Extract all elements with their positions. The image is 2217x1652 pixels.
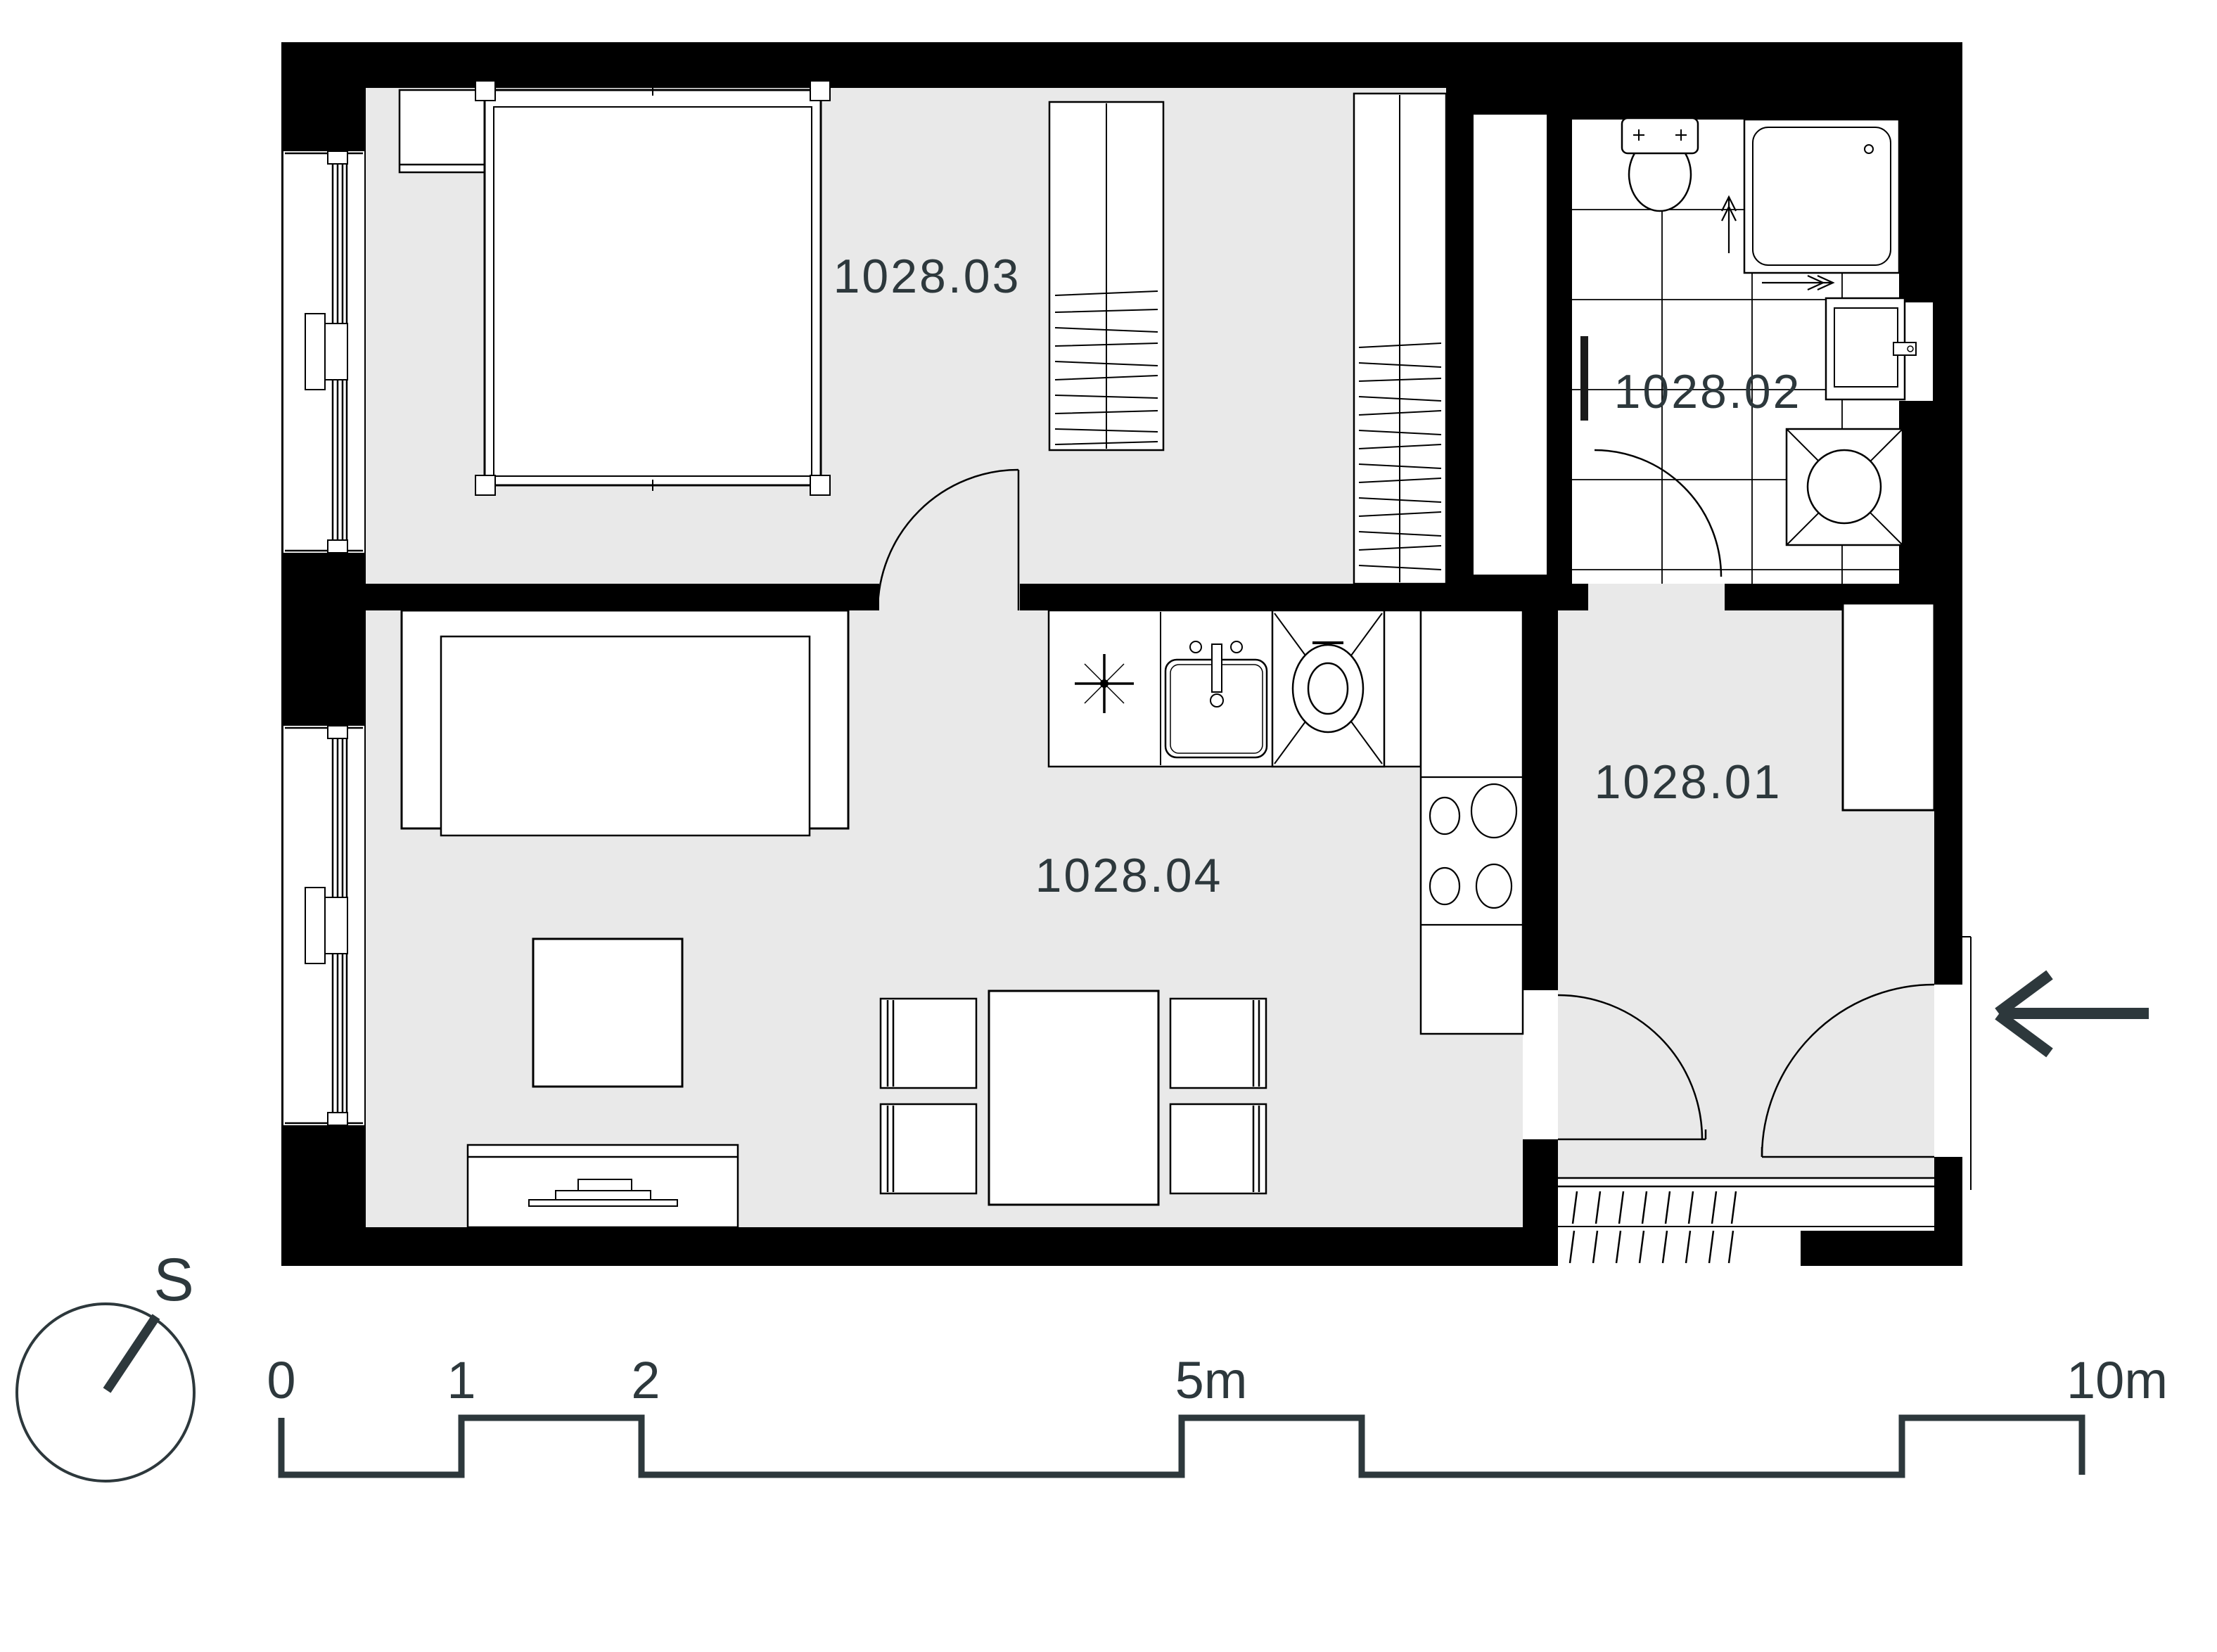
scale-tick-5m: 5m: [1175, 1355, 1248, 1407]
window-bedroom-glazing: [285, 151, 363, 553]
entrance-door: [1762, 985, 1934, 1157]
scale-tick-0: 0: [267, 1355, 295, 1407]
floor-plan-canvas: 1028.03 1028.02 1028.04 1028.01 S 0 1 2 …: [0, 0, 2217, 1652]
kitchen-sink: [1165, 641, 1267, 757]
coffee-table: [533, 939, 682, 1087]
scale-bar: [281, 1418, 2082, 1475]
entrance-arrow-icon: [1998, 975, 2149, 1053]
plan-linework: [0, 0, 2217, 1652]
tv-sideboard: [468, 1145, 738, 1227]
entry-closet: [1843, 603, 1934, 810]
toilet-icon: [1622, 118, 1698, 211]
bathroom-sink-icon: [1826, 298, 1916, 399]
compass-circle: [17, 1304, 194, 1481]
bedroom-door: [878, 470, 1018, 610]
sofa: [402, 610, 848, 835]
room-label-bedroom: 1028.03: [833, 252, 1021, 300]
window-living-glazing: [285, 726, 363, 1125]
shower-icon: [1744, 120, 1899, 273]
nightstand: [400, 90, 485, 172]
drain-arrow-right-icon: [1762, 276, 1833, 290]
room-label-entry: 1028.01: [1595, 758, 1782, 806]
compass-south-label: S: [153, 1250, 193, 1310]
kitchen-cooktop-symbol: [1272, 610, 1384, 767]
scale-tick-1: 1: [447, 1355, 475, 1407]
bed: [475, 81, 830, 495]
scale-tick-2: 2: [631, 1355, 660, 1407]
tv-icon: [529, 1200, 677, 1206]
compass-needle: [107, 1317, 156, 1390]
wardrobe-freestanding: [1049, 102, 1163, 450]
entrance-exterior-lines: [1936, 937, 1971, 1190]
room-label-living: 1028.04: [1035, 852, 1223, 899]
entry-inner-door: [1558, 995, 1706, 1139]
washing-machine-icon: [1787, 429, 1903, 545]
entrance-threshold: [1558, 1178, 1934, 1227]
scale-tick-10m: 10m: [2066, 1355, 2168, 1407]
room-label-bathroom: 1028.02: [1614, 368, 1802, 416]
compass: [17, 1304, 194, 1481]
drain-arrow-up-icon: [1722, 197, 1736, 253]
wardrobe-wall: [1354, 94, 1446, 584]
dining-table: [989, 991, 1158, 1205]
